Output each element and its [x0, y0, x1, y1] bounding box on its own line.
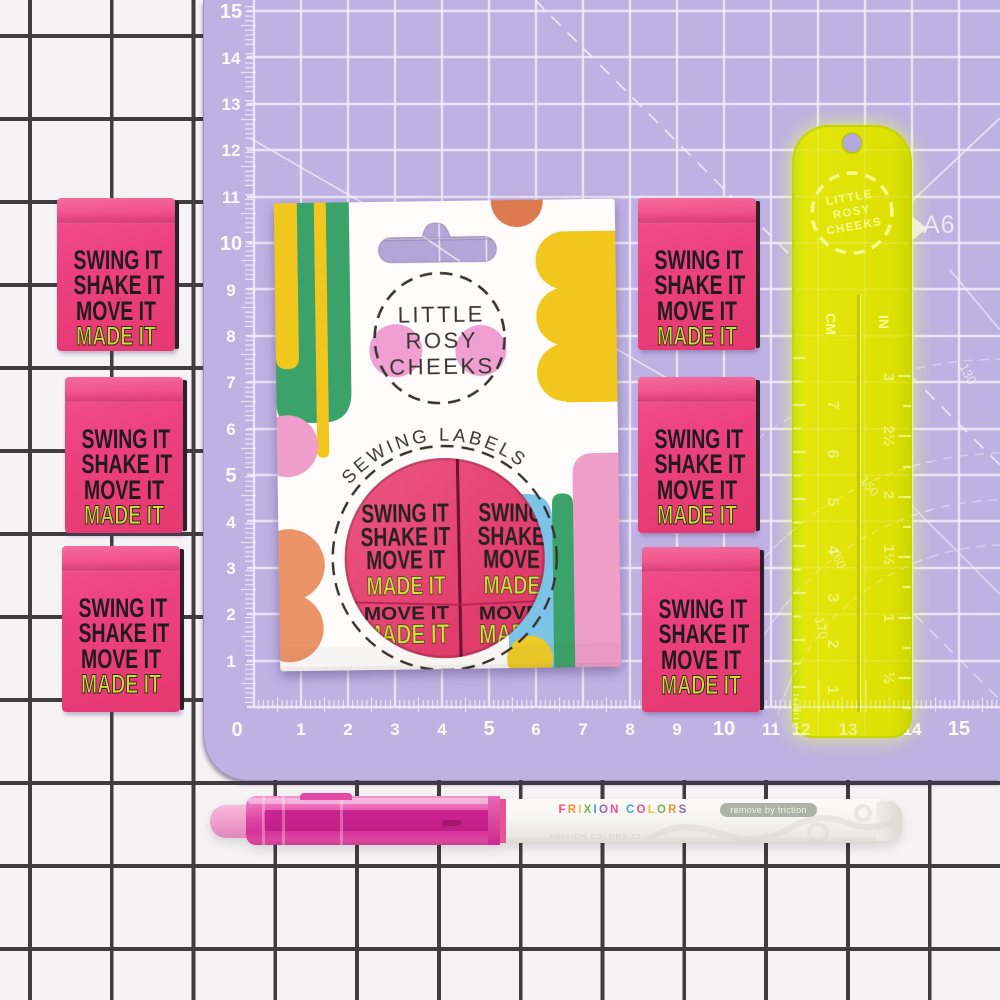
svg-text:15: 15	[220, 1, 242, 23]
svg-text:2½: 2½	[880, 426, 897, 447]
svg-text:7: 7	[226, 373, 235, 392]
svg-text:7: 7	[578, 720, 587, 739]
svg-text:½: ½	[880, 672, 897, 685]
svg-text:6: 6	[531, 720, 540, 739]
svg-text:3: 3	[390, 720, 399, 739]
svg-text:5: 5	[824, 498, 841, 507]
svg-text:2: 2	[824, 640, 841, 649]
svg-text:1: 1	[824, 686, 841, 695]
svg-text:5: 5	[225, 465, 236, 487]
svg-text:2: 2	[880, 491, 897, 499]
svg-text:CHEEKS: CHEEKS	[389, 353, 495, 379]
svg-text:LITTLE: LITTLE	[398, 301, 485, 327]
svg-text:13: 13	[222, 95, 241, 114]
svg-text:14: 14	[222, 49, 241, 68]
svg-text:ROSY: ROSY	[405, 328, 478, 354]
svg-text:9: 9	[226, 281, 235, 300]
svg-text:10: 10	[713, 718, 735, 740]
svg-text:3: 3	[824, 594, 841, 603]
svg-text:3: 3	[880, 373, 897, 381]
svg-text:0: 0	[231, 719, 242, 741]
svg-text:13: 13	[839, 720, 858, 739]
svg-text:12: 12	[792, 720, 811, 739]
svg-text:1: 1	[880, 614, 897, 622]
svg-text:9: 9	[672, 720, 681, 739]
svg-text:10: 10	[220, 233, 242, 255]
svg-text:1: 1	[296, 720, 305, 739]
svg-text:8: 8	[226, 327, 235, 346]
svg-text:IN: IN	[876, 315, 892, 329]
svg-text:MADE IT: MADE IT	[366, 570, 445, 601]
svg-text:6: 6	[226, 420, 235, 439]
svg-text:2: 2	[226, 605, 235, 624]
svg-text:1½: 1½	[880, 545, 897, 566]
svg-text:3: 3	[226, 559, 235, 578]
svg-text:7: 7	[824, 401, 841, 410]
svg-text:15: 15	[948, 718, 970, 740]
svg-text:2: 2	[343, 720, 352, 739]
svg-text:12: 12	[222, 141, 241, 160]
svg-text:CM: CM	[823, 313, 839, 335]
svg-text:8: 8	[625, 720, 634, 739]
svg-text:11: 11	[222, 188, 240, 207]
svg-text:4: 4	[437, 720, 447, 739]
svg-text:5: 5	[483, 718, 494, 740]
svg-text:6: 6	[824, 450, 841, 459]
svg-text:4: 4	[226, 513, 236, 532]
svg-text:1: 1	[226, 652, 235, 671]
